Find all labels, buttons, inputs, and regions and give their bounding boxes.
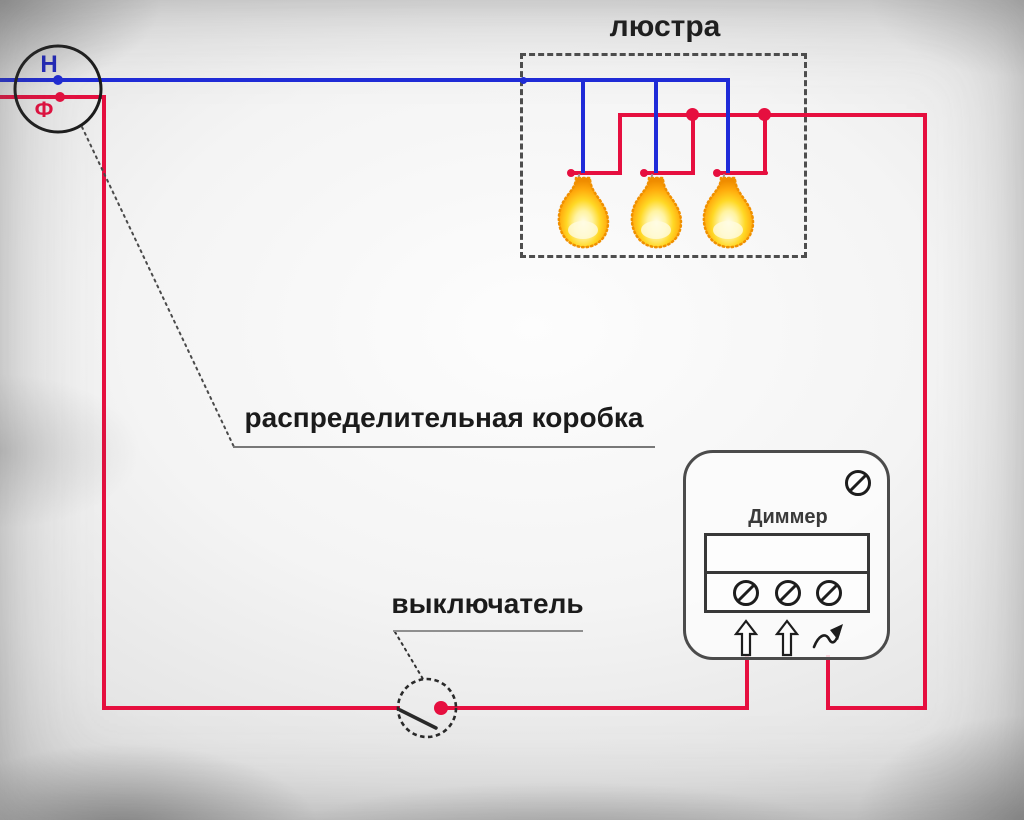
neutral-drop-wire-1 [581, 78, 585, 173]
switch-label: выключатель [385, 588, 590, 620]
neutral-wire-label: Н [38, 51, 60, 79]
phase-bottom-right-wire [826, 706, 927, 710]
neutral-entry-dot [520, 77, 527, 84]
switch-contact-dot [434, 701, 448, 715]
distribution-box-label: распределительная коробка [225, 402, 663, 434]
switch-underline [393, 630, 583, 632]
neutral-bus-wire [0, 78, 730, 82]
phase-stub-end-dot-2 [640, 169, 648, 177]
phase-tee-dot-1 [686, 108, 699, 121]
phase-left-drop-wire [102, 95, 106, 710]
phase-right-riser-wire [923, 113, 927, 710]
phase-stub-end-dot-1 [567, 169, 575, 177]
phase-switch-to-dimmer-wire [440, 706, 749, 710]
phase-dimmer-in-riser [745, 655, 749, 710]
switch-leader-line [395, 632, 423, 679]
neutral-drop-wire-3 [726, 78, 730, 173]
phase-bulb-drop-3 [763, 113, 767, 175]
phase-bottom-left-wire [102, 706, 400, 710]
phase-junction-dot [55, 92, 65, 102]
phase-tee-dot-2 [758, 108, 771, 121]
phase-bulb-drop-1 [618, 113, 622, 175]
dimmer-label: Диммер [705, 506, 871, 529]
chandelier-label: люстра [560, 10, 770, 44]
phase-top-bus-wire [618, 113, 927, 117]
phase-wire-label: Ф [33, 97, 55, 123]
neutral-drop-wire-2 [654, 78, 658, 173]
switch-lever [400, 710, 436, 728]
dimmer-panel-divider [704, 571, 870, 574]
phase-bulb-drop-2 [691, 113, 695, 175]
phase-dimmer-out-drop [826, 655, 830, 710]
distribution-box-underline [233, 446, 655, 448]
phase-stub-end-dot-3 [713, 169, 721, 177]
